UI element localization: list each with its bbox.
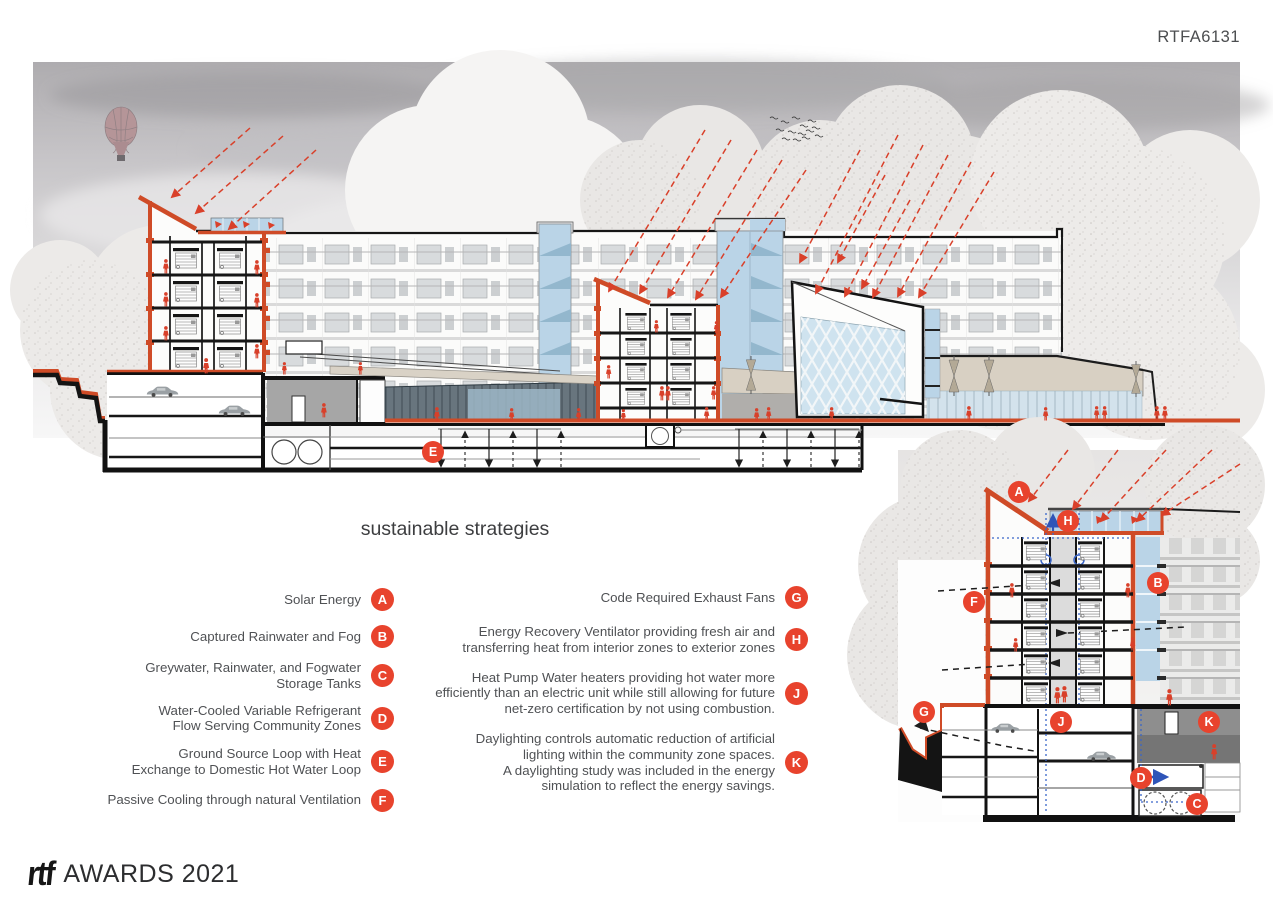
marker-h: H xyxy=(1057,510,1079,532)
legend-item-daylighting: Daylighting controls automatic reduction… xyxy=(420,731,808,794)
legend-text: Passive Cooling through natural Ventilat… xyxy=(107,792,361,808)
legend-item-vrf: Water-Cooled Variable Refrigerant Flow S… xyxy=(100,703,394,735)
legend-text: Heat Pump Water heaters providing hot wa… xyxy=(435,670,775,717)
legend-badge-c: C xyxy=(371,664,394,687)
legend-left-column: Solar Energy A Captured Rainwater and Fo… xyxy=(100,588,394,812)
legend-text: Water-Cooled Variable Refrigerant Flow S… xyxy=(159,703,362,735)
legend-item-exhaust-fans: Code Required Exhaust Fans G xyxy=(420,586,808,609)
legend-badge-g: G xyxy=(785,586,808,609)
glazed-stair-tower xyxy=(539,224,571,422)
legend-item-heat-pump: Heat Pump Water heaters providing hot wa… xyxy=(420,670,808,717)
long-building-elevation xyxy=(266,219,1062,422)
parking-garage xyxy=(103,373,862,472)
legend-text: Greywater, Rainwater, and Fogwater Stora… xyxy=(145,660,361,692)
legend-text: Code Required Exhaust Fans xyxy=(601,590,775,606)
marker-j: J xyxy=(1050,711,1072,733)
podium xyxy=(263,341,598,425)
presentation-board: { "header": { "project_code": "RTFA6131"… xyxy=(0,0,1273,900)
marker-d: D xyxy=(1130,767,1152,789)
marker-a: A xyxy=(1008,481,1030,503)
legend-item-storage-tanks: Greywater, Rainwater, and Fogwater Stora… xyxy=(100,660,394,692)
marker-g: G xyxy=(913,701,935,723)
legend-badge-a: A xyxy=(371,588,394,611)
legend-badge-d: D xyxy=(371,707,394,730)
trees xyxy=(10,50,1265,460)
legend-badge-b: B xyxy=(371,625,394,648)
detail-inset-background xyxy=(847,417,1265,822)
marker-f: F xyxy=(963,591,985,613)
legend-badge-h: H xyxy=(785,628,808,651)
project-code: RTFA6131 xyxy=(1157,28,1240,47)
glazed-stair-tower xyxy=(717,231,783,422)
footer: rtf AWARDS 2021 xyxy=(26,854,239,894)
legend-text: Energy Recovery Ventilator providing fre… xyxy=(462,624,775,656)
legend-right-column: Code Required Exhaust Fans G Energy Reco… xyxy=(420,586,808,794)
legend-badge-k: K xyxy=(785,751,808,774)
legend-item-erv: Energy Recovery Ventilator providing fre… xyxy=(420,624,808,656)
hot-air-balloon-icon xyxy=(105,107,137,161)
sun-arrow-icon xyxy=(215,221,275,229)
marker-b: B xyxy=(1147,572,1169,594)
community-zone-band xyxy=(722,307,1157,421)
hvac-diagram-lines xyxy=(992,513,1186,814)
awards-text: AWARDS 2021 xyxy=(63,860,239,889)
left-tower-section xyxy=(107,197,286,470)
marker-e: E xyxy=(422,441,444,463)
marker-c: C xyxy=(1186,793,1208,815)
legend-item-passive-cooling: Passive Cooling through natural Ventilat… xyxy=(100,789,394,812)
marker-k: K xyxy=(1198,711,1220,733)
legend-item-rainwater: Captured Rainwater and Fog B xyxy=(100,625,394,648)
sky-background xyxy=(33,59,1270,438)
legend-badge-j: J xyxy=(785,682,808,705)
page-title: sustainable strategies xyxy=(330,518,580,541)
legend-item-ground-source: Ground Source Loop with Heat Exchange to… xyxy=(100,746,394,778)
legend-item-solar-energy: Solar Energy A xyxy=(100,588,394,611)
legend-badge-e: E xyxy=(371,750,394,773)
legend-text: Ground Source Loop with Heat Exchange to… xyxy=(132,746,361,778)
birds-icon xyxy=(770,117,823,141)
legend-text: Captured Rainwater and Fog xyxy=(190,629,361,645)
atrium-diagrid xyxy=(792,282,940,417)
legend-badge-f: F xyxy=(371,789,394,812)
legend-text: Daylighting controls automatic reduction… xyxy=(476,731,775,794)
rtf-logo: rtf xyxy=(25,855,55,894)
ground-line xyxy=(33,371,1240,425)
legend-text: Solar Energy xyxy=(284,592,361,608)
section-cut-markers xyxy=(262,248,270,355)
detail-inset-section xyxy=(898,489,1240,822)
mid-tower-section xyxy=(594,279,721,420)
